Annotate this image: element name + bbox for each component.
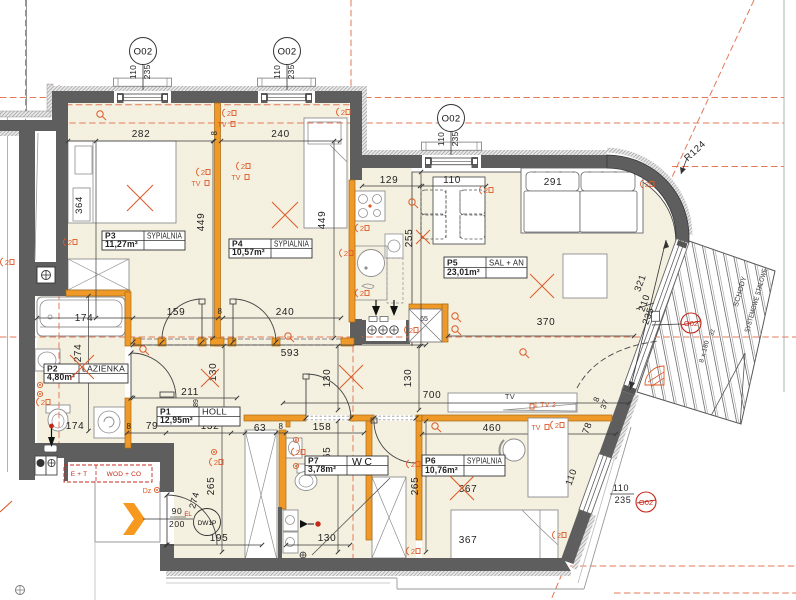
svg-text:23,01m²: 23,01m² — [447, 267, 480, 277]
svg-text:8: 8 — [278, 422, 283, 431]
svg-text:2: 2 — [360, 224, 364, 233]
svg-text:8: 8 — [210, 130, 219, 135]
svg-text:174: 174 — [66, 421, 85, 432]
svg-text:593: 593 — [281, 348, 300, 359]
svg-text:TV: TV — [532, 425, 541, 432]
svg-text:DW1P: DW1P — [198, 520, 217, 527]
svg-text:110: 110 — [443, 175, 461, 186]
svg-text:10,76m²: 10,76m² — [425, 465, 458, 475]
svg-text:2: 2 — [409, 326, 413, 335]
svg-text:O02: O02 — [442, 114, 461, 125]
svg-text:235: 235 — [615, 495, 632, 505]
svg-text:2: 2 — [214, 458, 218, 467]
svg-text:SAL + AN: SAL + AN — [489, 257, 524, 267]
svg-text:O02: O02 — [134, 47, 153, 58]
svg-text:SYPIALNIA: SYPIALNIA — [467, 455, 502, 465]
svg-text:211: 211 — [181, 387, 199, 398]
svg-text:3,78m²: 3,78m² — [308, 464, 336, 474]
svg-text:O02: O02 — [278, 47, 297, 58]
svg-text:2: 2 — [344, 249, 348, 258]
svg-text:2: 2 — [241, 162, 245, 171]
svg-text:63: 63 — [254, 423, 266, 434]
svg-text:460: 460 — [483, 423, 502, 434]
svg-text:2: 2 — [484, 186, 488, 195]
svg-text:282: 282 — [132, 129, 151, 140]
svg-text:ŁAZIENKA: ŁAZIENKA — [82, 363, 125, 373]
svg-text:P5: P5 — [447, 257, 458, 267]
svg-text:129: 129 — [380, 175, 399, 186]
svg-text:2: 2 — [296, 448, 300, 457]
svg-text:240: 240 — [276, 307, 295, 318]
svg-text:2: 2 — [411, 547, 415, 556]
svg-text:WOD + CO: WOD + CO — [107, 471, 142, 478]
svg-text:449: 449 — [317, 211, 328, 230]
svg-text:130: 130 — [318, 533, 337, 544]
svg-text:TV: TV — [218, 122, 227, 129]
svg-text:110: 110 — [436, 132, 446, 146]
svg-text:130: 130 — [322, 369, 333, 388]
svg-text:235: 235 — [450, 132, 460, 147]
svg-text:8: 8 — [217, 307, 222, 316]
svg-text:110: 110 — [272, 65, 282, 79]
svg-text:2: 2 — [411, 460, 415, 469]
svg-text:110: 110 — [128, 65, 138, 79]
svg-text:12,95m²: 12,95m² — [160, 415, 193, 425]
svg-text:10,57m²: 10,57m² — [232, 247, 265, 257]
svg-text:700: 700 — [423, 390, 442, 401]
svg-text:2: 2 — [360, 289, 364, 298]
svg-text:90: 90 — [172, 506, 183, 516]
svg-text:89: 89 — [193, 399, 200, 407]
svg-text:2: 2 — [5, 258, 9, 267]
svg-text:2: 2 — [341, 108, 345, 117]
svg-text:159: 159 — [167, 307, 186, 318]
svg-text:TV: TV — [192, 181, 201, 188]
svg-text:SYPIALNIA: SYPIALNIA — [274, 238, 309, 248]
svg-text:449: 449 — [196, 213, 207, 232]
svg-text:1 TV 2: 1 TV 2 — [534, 402, 556, 409]
svg-text:2: 2 — [68, 238, 72, 247]
svg-text:2: 2 — [555, 421, 559, 430]
svg-text:2: 2 — [227, 109, 231, 118]
svg-text:235: 235 — [286, 65, 296, 80]
svg-text:Dz: Dz — [143, 488, 152, 495]
svg-text:370: 370 — [537, 317, 556, 328]
svg-text:2: 2 — [557, 531, 561, 540]
svg-text:265: 265 — [410, 477, 421, 496]
svg-text:255: 255 — [404, 229, 415, 248]
svg-text:SYPIALNIA: SYPIALNIA — [147, 230, 182, 240]
svg-text:HOLL: HOLL — [202, 406, 227, 416]
svg-text:367: 367 — [459, 535, 478, 546]
svg-text:130: 130 — [403, 369, 414, 388]
svg-text:4,80m²: 4,80m² — [47, 372, 75, 382]
svg-text:265: 265 — [206, 477, 217, 496]
svg-text:291: 291 — [544, 177, 563, 188]
svg-text:200: 200 — [169, 519, 185, 529]
svg-text:79: 79 — [146, 421, 158, 432]
svg-text:2: 2 — [41, 398, 45, 407]
svg-text:235: 235 — [142, 65, 152, 80]
svg-text:2: 2 — [201, 168, 205, 177]
svg-text:11,27m²: 11,27m² — [105, 239, 138, 249]
svg-text:158: 158 — [313, 422, 332, 433]
svg-text:8: 8 — [126, 422, 131, 431]
svg-text:WC: WC — [352, 456, 375, 468]
svg-text:240: 240 — [271, 129, 290, 140]
svg-text:P6: P6 — [425, 455, 436, 465]
svg-text:174: 174 — [75, 313, 94, 324]
svg-text:TV: TV — [232, 175, 241, 182]
svg-text:2: 2 — [645, 180, 649, 189]
svg-text:364: 364 — [74, 196, 85, 214]
svg-text:TV: TV — [505, 392, 515, 401]
svg-text:110: 110 — [613, 483, 629, 493]
svg-text:E + T: E + T — [71, 471, 88, 478]
